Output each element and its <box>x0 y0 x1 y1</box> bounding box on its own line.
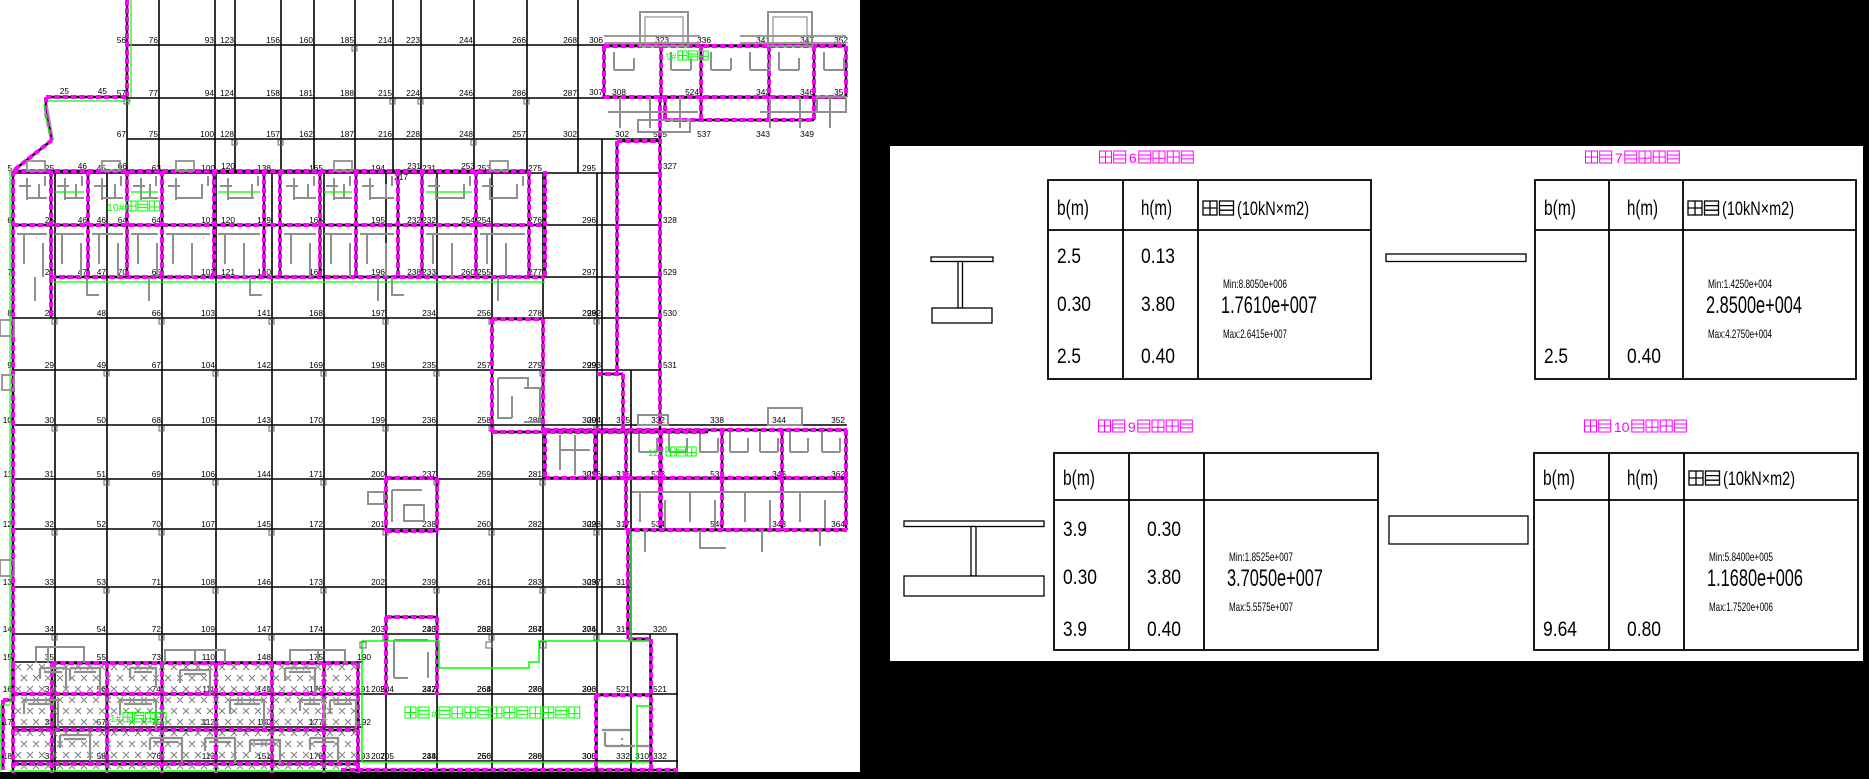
svg-text:Max:5.5575e+007: Max:5.5575e+007 <box>1229 600 1293 614</box>
svg-text:521: 521 <box>616 684 630 694</box>
svg-text:156: 156 <box>266 35 280 45</box>
svg-text:364: 364 <box>831 519 845 529</box>
svg-text:171: 171 <box>309 469 323 479</box>
svg-text:223: 223 <box>406 35 420 45</box>
svg-text:54: 54 <box>97 624 107 634</box>
svg-text:279: 279 <box>528 360 542 370</box>
svg-text:162: 162 <box>299 129 313 139</box>
svg-text:142: 142 <box>257 360 271 370</box>
svg-text:170: 170 <box>309 415 323 425</box>
svg-text:b(m): b(m) <box>1057 197 1089 220</box>
svg-text:(10kN×m2): (10kN×m2) <box>1722 199 1794 220</box>
svg-text:281: 281 <box>528 469 542 479</box>
svg-text:51: 51 <box>97 469 107 479</box>
svg-text:185: 185 <box>340 35 354 45</box>
svg-text:68: 68 <box>152 415 162 425</box>
svg-text:Min:1.4250e+004: Min:1.4250e+004 <box>1708 277 1772 291</box>
svg-text:h(m): h(m) <box>1141 197 1172 220</box>
svg-text:10#: 10# <box>107 202 125 214</box>
svg-text:143: 143 <box>257 415 271 425</box>
svg-text:296: 296 <box>582 215 596 225</box>
svg-text:215: 215 <box>378 88 392 98</box>
svg-text:9#: 9# <box>666 52 677 63</box>
svg-text:141: 141 <box>257 308 271 318</box>
svg-text:2.5: 2.5 <box>1057 245 1081 268</box>
svg-text:123: 123 <box>220 35 234 45</box>
svg-text:52: 52 <box>97 519 107 529</box>
svg-text:Min:1.8525e+007: Min:1.8525e+007 <box>1229 550 1293 564</box>
svg-text:0.80: 0.80 <box>1627 618 1661 641</box>
svg-text:0.30: 0.30 <box>1063 566 1097 589</box>
svg-text:Max:4.2750e+004: Max:4.2750e+004 <box>1708 327 1772 341</box>
svg-text:298: 298 <box>587 519 601 529</box>
svg-text:1.7610e+007: 1.7610e+007 <box>1221 292 1317 319</box>
svg-text:Max:1.7520e+006: Max:1.7520e+006 <box>1709 600 1773 614</box>
svg-text:33: 33 <box>45 577 55 587</box>
svg-text:107: 107 <box>201 519 215 529</box>
svg-text:128: 128 <box>220 129 234 139</box>
svg-text:531: 531 <box>663 360 677 370</box>
svg-text:(10kN×m2): (10kN×m2) <box>1237 199 1309 220</box>
svg-text:239: 239 <box>422 577 436 587</box>
svg-text:537: 537 <box>697 129 711 139</box>
svg-text:202: 202 <box>371 577 385 587</box>
svg-text:188: 188 <box>340 88 354 98</box>
svg-text:7: 7 <box>1615 150 1623 166</box>
svg-text:246: 246 <box>459 88 473 98</box>
svg-text:100: 100 <box>200 129 214 139</box>
svg-text:529: 529 <box>663 267 677 277</box>
svg-text:35: 35 <box>45 652 55 662</box>
svg-text:14: 14 <box>3 624 13 634</box>
svg-text:148: 148 <box>257 652 271 662</box>
svg-text:69: 69 <box>152 469 162 479</box>
svg-text:337: 337 <box>422 684 436 694</box>
svg-text:201: 201 <box>371 519 385 529</box>
svg-text:b(m): b(m) <box>1544 197 1576 220</box>
svg-text:175: 175 <box>309 652 323 662</box>
svg-text:31: 31 <box>45 469 55 479</box>
svg-text:307: 307 <box>589 87 603 97</box>
svg-text:108: 108 <box>201 577 215 587</box>
svg-text:172: 172 <box>309 519 323 529</box>
svg-text:216: 216 <box>378 129 392 139</box>
svg-text:276: 276 <box>582 624 596 634</box>
svg-text:256: 256 <box>477 308 491 318</box>
svg-text:76: 76 <box>149 35 159 45</box>
svg-text:30: 30 <box>45 415 55 425</box>
svg-text:67: 67 <box>152 360 162 370</box>
svg-text:b(m): b(m) <box>1063 467 1095 490</box>
svg-text:270: 270 <box>528 684 542 694</box>
svg-text:12#: 12# <box>648 448 665 459</box>
svg-text:343: 343 <box>756 129 770 139</box>
svg-text:93: 93 <box>205 35 215 45</box>
svg-text:257: 257 <box>528 624 542 634</box>
svg-text:297: 297 <box>587 577 601 587</box>
svg-text:109: 109 <box>201 624 215 634</box>
svg-text:9.64: 9.64 <box>1543 618 1577 641</box>
svg-text:224: 224 <box>406 88 420 98</box>
svg-text:228: 228 <box>406 129 420 139</box>
svg-text:214: 214 <box>378 35 392 45</box>
svg-text:234: 234 <box>422 308 436 318</box>
svg-text:260: 260 <box>477 519 491 529</box>
svg-text:13: 13 <box>3 577 13 587</box>
svg-text:174: 174 <box>309 624 323 634</box>
svg-text:257: 257 <box>512 129 526 139</box>
svg-text:157: 157 <box>266 129 280 139</box>
svg-text:302: 302 <box>563 129 577 139</box>
svg-text:3.7050e+007: 3.7050e+007 <box>1227 565 1323 592</box>
svg-text:0.40: 0.40 <box>1147 618 1181 641</box>
svg-text:49: 49 <box>97 360 107 370</box>
svg-text:282: 282 <box>528 519 542 529</box>
svg-text:106: 106 <box>201 469 215 479</box>
svg-text:66: 66 <box>152 308 162 318</box>
svg-text:48: 48 <box>97 308 107 318</box>
svg-text:3.9: 3.9 <box>1063 518 1087 541</box>
svg-text:0.40: 0.40 <box>1141 345 1175 368</box>
svg-text:16: 16 <box>3 684 13 694</box>
svg-text:73: 73 <box>152 652 162 662</box>
svg-text:344: 344 <box>772 415 786 425</box>
svg-text:233: 233 <box>422 624 436 634</box>
svg-text:320: 320 <box>653 624 667 634</box>
svg-text:250: 250 <box>477 751 491 761</box>
svg-text:338: 338 <box>710 415 724 425</box>
svg-text:177: 177 <box>309 717 323 727</box>
svg-text:297: 297 <box>582 267 596 277</box>
svg-text:259: 259 <box>477 469 491 479</box>
svg-text:200: 200 <box>371 469 385 479</box>
svg-text:50: 50 <box>97 415 107 425</box>
svg-text:268: 268 <box>477 684 491 694</box>
svg-text:266: 266 <box>512 35 526 45</box>
svg-text:235: 235 <box>422 360 436 370</box>
svg-text:327: 327 <box>663 161 677 171</box>
svg-text:h(m): h(m) <box>1627 197 1658 220</box>
svg-text:70: 70 <box>152 519 162 529</box>
svg-text:3.80: 3.80 <box>1147 566 1181 589</box>
svg-text:521: 521 <box>653 684 667 694</box>
svg-text:199: 199 <box>371 415 385 425</box>
svg-text:168: 168 <box>309 308 323 318</box>
svg-text:258: 258 <box>477 415 491 425</box>
svg-text:(10kN×m2): (10kN×m2) <box>1723 469 1795 490</box>
svg-text:Min:8.8050e+006: Min:8.8050e+006 <box>1223 277 1287 291</box>
svg-text:144: 144 <box>257 469 271 479</box>
svg-text:160: 160 <box>299 35 313 45</box>
svg-text:53: 53 <box>97 577 107 587</box>
svg-text:158: 158 <box>266 88 280 98</box>
svg-text:352: 352 <box>831 415 845 425</box>
svg-text:1.1680e+006: 1.1680e+006 <box>1707 565 1803 592</box>
svg-text:h(m): h(m) <box>1627 467 1658 490</box>
svg-text:34: 34 <box>45 624 55 634</box>
svg-text:257: 257 <box>477 360 491 370</box>
svg-text:348: 348 <box>772 519 786 529</box>
svg-text:268: 268 <box>563 35 577 45</box>
svg-text:b(m): b(m) <box>1543 467 1575 490</box>
svg-text:10: 10 <box>3 415 13 425</box>
svg-text:287: 287 <box>563 88 577 98</box>
svg-text:57: 57 <box>97 717 107 727</box>
svg-text:2.5: 2.5 <box>1544 345 1568 368</box>
svg-text:317: 317 <box>616 519 630 529</box>
svg-text:294: 294 <box>587 415 601 425</box>
svg-text:147: 147 <box>257 624 271 634</box>
svg-text:94: 94 <box>205 88 215 98</box>
svg-text:197: 197 <box>371 308 385 318</box>
svg-text:292: 292 <box>587 308 601 318</box>
svg-text:190: 190 <box>357 652 371 662</box>
svg-text:77: 77 <box>149 88 159 98</box>
svg-text:0.40: 0.40 <box>1627 345 1661 368</box>
svg-text:280: 280 <box>528 751 542 761</box>
svg-text:293: 293 <box>587 360 601 370</box>
svg-text:198: 198 <box>371 360 385 370</box>
svg-text:103: 103 <box>201 308 215 318</box>
svg-text:124: 124 <box>220 88 234 98</box>
svg-text:178: 178 <box>309 751 323 761</box>
svg-text:1#: 1# <box>110 714 122 725</box>
svg-text:15: 15 <box>3 652 13 662</box>
svg-text:#: # <box>431 709 438 721</box>
svg-text:45: 45 <box>98 86 108 96</box>
svg-text:286: 286 <box>512 88 526 98</box>
svg-text:302: 302 <box>615 129 629 139</box>
svg-text:0.30: 0.30 <box>1147 518 1181 541</box>
svg-text:72: 72 <box>152 624 162 634</box>
svg-text:146: 146 <box>257 577 271 587</box>
svg-text:3.80: 3.80 <box>1141 293 1175 316</box>
svg-text:145: 145 <box>257 519 271 529</box>
svg-text:10: 10 <box>1614 419 1630 435</box>
svg-text:181: 181 <box>299 88 313 98</box>
svg-text:530: 530 <box>663 308 677 318</box>
svg-text:278: 278 <box>528 308 542 318</box>
svg-text:Max:2.6415e+007: Max:2.6415e+007 <box>1223 327 1287 341</box>
svg-text:248: 248 <box>459 129 473 139</box>
svg-text:306: 306 <box>589 35 603 45</box>
svg-text:110: 110 <box>202 652 216 662</box>
svg-text:55: 55 <box>97 652 107 662</box>
svg-text:290: 290 <box>582 684 596 694</box>
svg-text:105: 105 <box>201 415 215 425</box>
svg-text:67: 67 <box>117 129 127 139</box>
svg-text:203: 203 <box>371 624 385 634</box>
svg-text:173: 173 <box>309 577 323 587</box>
svg-text:25: 25 <box>60 86 70 96</box>
svg-text:104: 104 <box>201 360 215 370</box>
svg-text:244: 244 <box>459 35 473 45</box>
svg-text:71: 71 <box>152 577 162 587</box>
svg-text:Min:5.8400e+005: Min:5.8400e+005 <box>1709 550 1773 564</box>
svg-text:29: 29 <box>45 360 55 370</box>
svg-text:238: 238 <box>422 751 436 761</box>
svg-text:205: 205 <box>380 751 394 761</box>
svg-text:295: 295 <box>582 163 596 173</box>
svg-text:332: 332 <box>616 751 630 761</box>
svg-text:3.9: 3.9 <box>1063 618 1087 641</box>
svg-text:2.8500e+004: 2.8500e+004 <box>1706 292 1802 319</box>
svg-text:2.5: 2.5 <box>1057 345 1081 368</box>
svg-text:12: 12 <box>3 519 13 529</box>
svg-text:9: 9 <box>1128 419 1136 435</box>
svg-text:238: 238 <box>477 624 491 634</box>
svg-text:283: 283 <box>528 577 542 587</box>
svg-text:236: 236 <box>422 415 436 425</box>
svg-text:75: 75 <box>149 129 159 139</box>
svg-text:56: 56 <box>117 35 127 45</box>
svg-text:261: 261 <box>477 577 491 587</box>
svg-text:349: 349 <box>800 129 814 139</box>
svg-text:0.30: 0.30 <box>1057 293 1091 316</box>
svg-text:328: 328 <box>663 215 677 225</box>
svg-text:332: 332 <box>653 751 667 761</box>
svg-text:0.13: 0.13 <box>1141 245 1175 268</box>
svg-text:6: 6 <box>1129 150 1137 166</box>
svg-text:187: 187 <box>340 129 354 139</box>
svg-text:169: 169 <box>309 360 323 370</box>
svg-text:32: 32 <box>45 519 55 529</box>
